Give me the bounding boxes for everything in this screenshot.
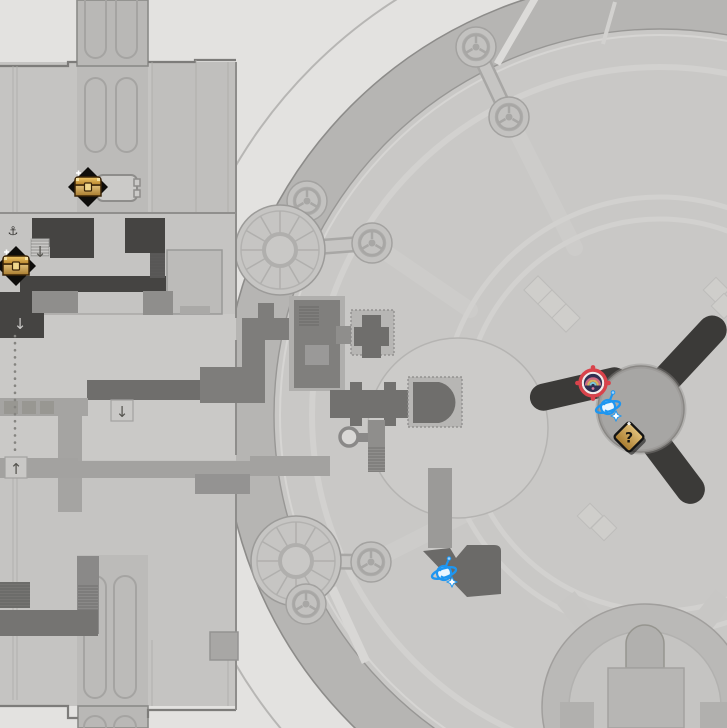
stairs bbox=[368, 446, 385, 472]
rosette-medallion bbox=[456, 27, 496, 67]
rosette-plaza-junction bbox=[235, 205, 325, 295]
south-gate bbox=[542, 596, 727, 728]
rosette-medallion bbox=[489, 97, 529, 137]
mid-platform bbox=[167, 250, 222, 314]
corridor-blocks bbox=[4, 401, 54, 414]
world-map: ? ↓ ↓ ↓ ↑ ⚓ bbox=[0, 0, 727, 728]
floor-arrow-up[interactable]: ↑ bbox=[5, 457, 27, 478]
plus-room bbox=[351, 310, 394, 358]
rosette-medallion bbox=[351, 542, 391, 582]
floor-arrow-down[interactable]: ↓ bbox=[14, 315, 27, 333]
plaza-west-circle bbox=[368, 338, 548, 518]
mystery-poi-label: ? bbox=[625, 431, 633, 447]
game-map-viewport[interactable]: ? ↓ ↓ ↓ ↑ ⚓ bbox=[0, 0, 727, 728]
rosette-medallion bbox=[286, 584, 326, 624]
bullet-room bbox=[408, 377, 462, 427]
south-shaft bbox=[428, 468, 452, 548]
floor-arrow-down[interactable]: ↓ bbox=[111, 400, 133, 421]
svg-text:↓: ↓ bbox=[116, 403, 129, 421]
gate-arch bbox=[626, 625, 664, 668]
anchor-symbol: ⚓ bbox=[8, 224, 19, 238]
stairs bbox=[299, 305, 319, 327]
west-corridor bbox=[87, 380, 200, 400]
rosette-medallion bbox=[352, 223, 392, 263]
svg-text:↑: ↑ bbox=[10, 460, 23, 478]
floor-arrow-down[interactable]: ↓ bbox=[34, 243, 47, 261]
